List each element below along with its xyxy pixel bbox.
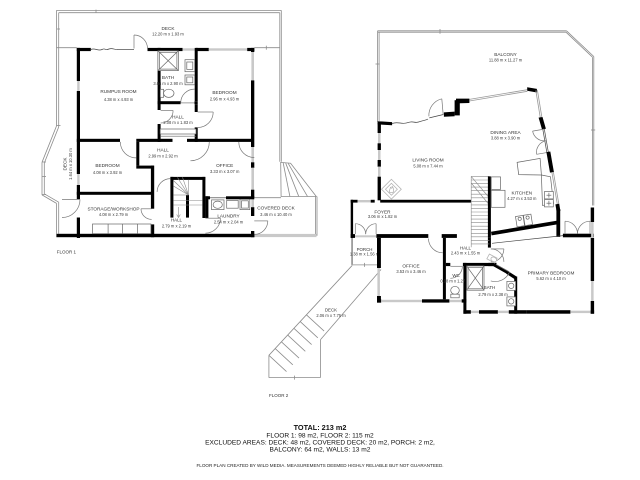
svg-text:BEDROOM: BEDROOM (212, 90, 236, 95)
svg-text:2.06 m x 7.75 m: 2.06 m x 7.75 m (316, 313, 346, 318)
svg-text:5.08 m x 7.44 m: 5.08 m x 7.44 m (413, 164, 443, 169)
svg-text:BEDROOM: BEDROOM (95, 163, 119, 168)
svg-text:FLOOR PLAN CREATED BY WILD MED: FLOOR PLAN CREATED BY WILD MEDIA. MEASUR… (196, 463, 443, 468)
svg-text:BALCONY: BALCONY (494, 52, 517, 57)
svg-text:1.38 m x 1.56 m: 1.38 m x 1.56 m (350, 251, 380, 256)
svg-text:3.53 m x 3.46 m: 3.53 m x 3.46 m (396, 269, 426, 274)
svg-text:OFFICE: OFFICE (402, 264, 419, 269)
svg-text:12.20 m x 1.93 m: 12.20 m x 1.93 m (152, 32, 184, 37)
svg-text:DECK: DECK (63, 157, 68, 171)
svg-text:BATH: BATH (484, 285, 495, 290)
svg-text:5.62 m x 4.10 m: 5.62 m x 4.10 m (536, 276, 566, 281)
svg-text:4.38 m x 4.93 m: 4.38 m x 4.93 m (104, 97, 134, 102)
svg-text:OFFICE: OFFICE (216, 163, 233, 168)
svg-text:TOTAL: 213 m2: TOTAL: 213 m2 (294, 423, 347, 432)
svg-text:3.06 m x 1.82 m: 3.06 m x 1.82 m (368, 214, 398, 219)
svg-text:3.46 m x 10.40 m: 3.46 m x 10.40 m (260, 212, 292, 217)
svg-text:4.08 m x 2.79 m: 4.08 m x 2.79 m (99, 212, 129, 217)
svg-text:FLOOR 1: FLOOR 1 (57, 250, 77, 255)
svg-text:2.99 m x 2.92 m: 2.99 m x 2.92 m (148, 154, 178, 159)
svg-text:2.96 m x 4.93 m: 2.96 m x 4.93 m (210, 97, 240, 102)
svg-text:BALCONY: 64 m2, WALLS: 13 m2: BALCONY: 64 m2, WALLS: 13 m2 (270, 447, 371, 454)
svg-text:HALL: HALL (172, 115, 184, 120)
svg-text:KITCHEN: KITCHEN (512, 191, 533, 196)
svg-text:LIVING ROOM: LIVING ROOM (412, 158, 443, 163)
svg-text:4.27 m x 3.53 m: 4.27 m x 3.53 m (507, 196, 537, 201)
svg-text:DINING AREA: DINING AREA (490, 130, 521, 135)
svg-text:3.88 m x 3.90 m: 3.88 m x 3.90 m (491, 136, 521, 141)
svg-text:FLOOR 1: 98 m2, FLOOR 2: 115 m: FLOOR 1: 98 m2, FLOOR 2: 115 m2 (266, 433, 374, 440)
svg-text:BATH: BATH (162, 75, 174, 80)
svg-text:3.04 m x 2.90 m: 3.04 m x 2.90 m (153, 81, 183, 86)
svg-text:HALL: HALL (157, 148, 169, 153)
svg-text:3.33 m x 3.07 m: 3.33 m x 3.07 m (210, 169, 240, 174)
svg-text:STORAGE/WORKSHOP: STORAGE/WORKSHOP (87, 207, 139, 212)
svg-text:COVERED DECK: COVERED DECK (257, 206, 295, 211)
svg-text:4.08 m x 3.92 m: 4.08 m x 3.92 m (93, 170, 123, 175)
svg-text:LAUNDRY: LAUNDRY (217, 214, 240, 219)
svg-text:EXCLUDED AREAS: DECK: 48 m2, C: EXCLUDED AREAS: DECK: 48 m2, COVERED DEC… (205, 440, 435, 447)
svg-text:FLOOR 2: FLOOR 2 (269, 393, 289, 398)
svg-text:2.79 m x 2.19 m: 2.79 m x 2.19 m (162, 223, 192, 228)
svg-text:2.43 m x 1.55 m: 2.43 m x 1.55 m (451, 250, 481, 255)
svg-text:11.88 m x 11.27 m: 11.88 m x 11.27 m (489, 57, 523, 62)
svg-text:PRIMARY BEDROOM: PRIMARY BEDROOM (528, 271, 575, 276)
svg-text:2.79 m x 2.38 m: 2.79 m x 2.38 m (478, 292, 508, 297)
svg-text:HALL: HALL (171, 218, 183, 223)
svg-text:1.64 m x 10.30 m: 1.64 m x 10.30 m (68, 148, 73, 180)
svg-text:DECK: DECK (161, 26, 175, 31)
svg-text:WC: WC (452, 273, 459, 278)
svg-text:2.54 m x 2.04 m: 2.54 m x 2.04 m (214, 220, 244, 225)
svg-text:DECK: DECK (325, 308, 337, 313)
svg-text:0.98 m x 1.27 m: 0.98 m x 1.27 m (440, 278, 470, 283)
svg-text:2.08 m x 1.83 m: 2.08 m x 1.83 m (163, 120, 193, 125)
svg-text:RUMPUS ROOM: RUMPUS ROOM (100, 89, 136, 94)
